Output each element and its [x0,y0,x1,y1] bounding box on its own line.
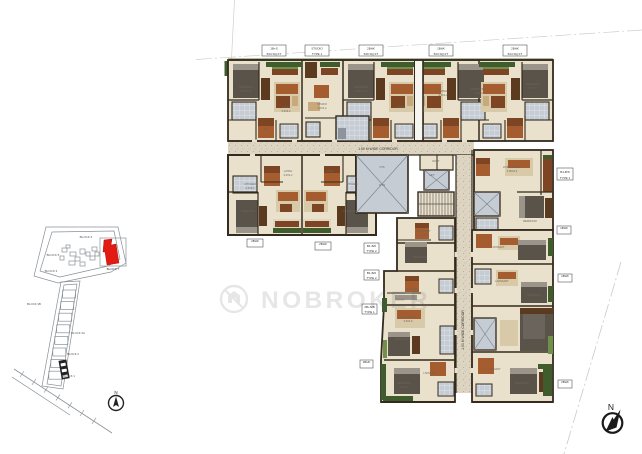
svg-text:LIVING/KIT: LIVING/KIT [491,245,505,249]
svg-text:524 SQ.FT: 524 SQ.FT [434,52,449,56]
svg-text:2BHK: 2BHK [561,380,569,384]
svg-text:BLOCK 7: BLOCK 7 [107,267,120,271]
svg-text:BEDROOM: BEDROOM [395,337,408,341]
svg-text:2BHK: 2BHK [251,239,259,243]
svg-text:LIVING DINING: LIVING DINING [503,165,521,169]
svg-text:TYPE 2: TYPE 2 [366,276,377,280]
svg-text:LIVING: LIVING [326,169,335,173]
svg-text:3.3X4.9: 3.3X4.9 [404,319,413,323]
svg-text:BEDROOM: BEDROOM [413,255,426,259]
svg-text:B1-B/2: B1-B/2 [367,271,377,275]
svg-text:2BHK: 2BHK [367,47,375,51]
svg-text:1.50 M WIDE CORRIDOR: 1.50 M WIDE CORRIDOR [358,147,398,151]
svg-text:BEDROOM: BEDROOM [343,209,356,213]
svg-text:BEDROOM: BEDROOM [527,293,540,297]
svg-text:524 SQ.FT: 524 SQ.FT [267,52,282,56]
svg-text:3.3X4.2: 3.3X4.2 [284,173,293,177]
svg-text:3.0X4.2: 3.0X4.2 [532,327,541,331]
svg-text:TYPE 2: TYPE 2 [366,249,377,253]
svg-text:KITCHEN: KITCHEN [346,182,358,186]
svg-text:LIVING/KIT: LIVING/KIT [417,229,431,233]
svg-text:KITCHEN: KITCHEN [244,182,256,186]
svg-text:3.0X3.3: 3.0X3.3 [474,91,483,95]
svg-text:BLOCK 3B: BLOCK 3B [27,302,41,306]
svg-text:BEDROOM: BEDROOM [241,209,254,213]
svg-text:1.50 M WIDE CORRIDOR: 1.50 M WIDE CORRIDOR [461,310,465,350]
svg-text:BEDROOM: BEDROOM [239,85,252,89]
svg-text:N: N [114,390,117,395]
svg-text:3.3X4.2: 3.3X4.2 [439,93,448,97]
svg-text:3.35X4.2: 3.35X4.2 [507,169,518,173]
svg-text:3.0X4.4: 3.0X4.4 [318,106,327,110]
svg-text:N: N [608,402,614,412]
svg-text:3.3X4.2: 3.3X4.2 [282,109,291,113]
svg-text:3.0X3.3: 3.0X3.3 [529,86,538,90]
svg-text:BLOCK 1: BLOCK 1 [63,374,75,378]
svg-text:TYPE 1: TYPE 1 [560,176,571,180]
svg-text:LIVING DINING: LIVING DINING [399,315,417,319]
svg-text:DUCT: DUCT [432,159,440,163]
svg-text:1BHK: 1BHK [560,226,568,230]
svg-text:BEDROOM: BEDROOM [397,381,410,385]
svg-text:BLOCK 4: BLOCK 4 [45,269,58,273]
svg-text:LIFT: LIFT [429,173,435,177]
svg-text:3.0X3.2: 3.0X3.2 [400,385,409,389]
svg-text:BEDROOM: BEDROOM [471,87,484,91]
svg-text:LIVING/KIT: LIVING/KIT [495,279,509,283]
svg-text:3.05X3.30: 3.05X3.30 [240,89,252,93]
svg-text:3.05X3.30: 3.05X3.30 [355,89,367,93]
svg-text:B1-B/2: B1-B/2 [367,244,377,248]
svg-text:BLOCK 3A: BLOCK 3A [71,331,85,335]
svg-text:NOBROKER: NOBROKER [261,287,431,314]
svg-text:LIVING: LIVING [282,105,291,109]
svg-text:STUDIO: STUDIO [317,102,327,106]
svg-text:OTS: OTS [379,165,385,169]
svg-text:1B+S: 1B+S [270,47,277,51]
svg-text:KIT: KIT [264,127,268,131]
svg-text:LIVING/KIT: LIVING/KIT [423,371,437,375]
svg-text:1BHK: 1BHK [561,274,569,278]
svg-text:OTS: OTS [379,183,385,187]
svg-text:529 SQ.FT: 529 SQ.FT [364,52,379,56]
svg-text:BLOCK 6: BLOCK 6 [80,235,93,239]
svg-text:B1-B/S: B1-B/S [560,170,570,174]
svg-text:BLOCK 5: BLOCK 5 [47,253,60,257]
svg-text:STUDIO: STUDIO [311,47,323,51]
svg-text:BLOCK 2: BLOCK 2 [67,352,79,356]
svg-text:2BHK: 2BHK [319,242,327,246]
svg-text:BEDROOM: BEDROOM [354,85,367,89]
svg-text:524 SQ.FT: 524 SQ.FT [508,52,523,56]
svg-text:BEDROOM: BEDROOM [529,323,542,327]
svg-text:LIVING: LIVING [284,169,293,173]
svg-text:LIVING/KIT: LIVING/KIT [487,367,501,371]
svg-text:1BHK: 1BHK [363,360,371,364]
svg-text:BEDROOM: BEDROOM [523,219,536,223]
svg-text:TYPE 1: TYPE 1 [312,52,323,56]
svg-text:1BHK: 1BHK [437,47,445,51]
svg-text:2BHK: 2BHK [511,47,519,51]
svg-text:2.4X3.0: 2.4X3.0 [246,186,255,190]
svg-text:BEDROOM: BEDROOM [526,82,539,86]
svg-text:LIVING: LIVING [439,89,448,93]
svg-text:BEDROOM: BEDROOM [515,381,528,385]
svg-text:2.4X3.9: 2.4X3.9 [420,233,429,237]
svg-text:LIVING: LIVING [397,105,406,109]
